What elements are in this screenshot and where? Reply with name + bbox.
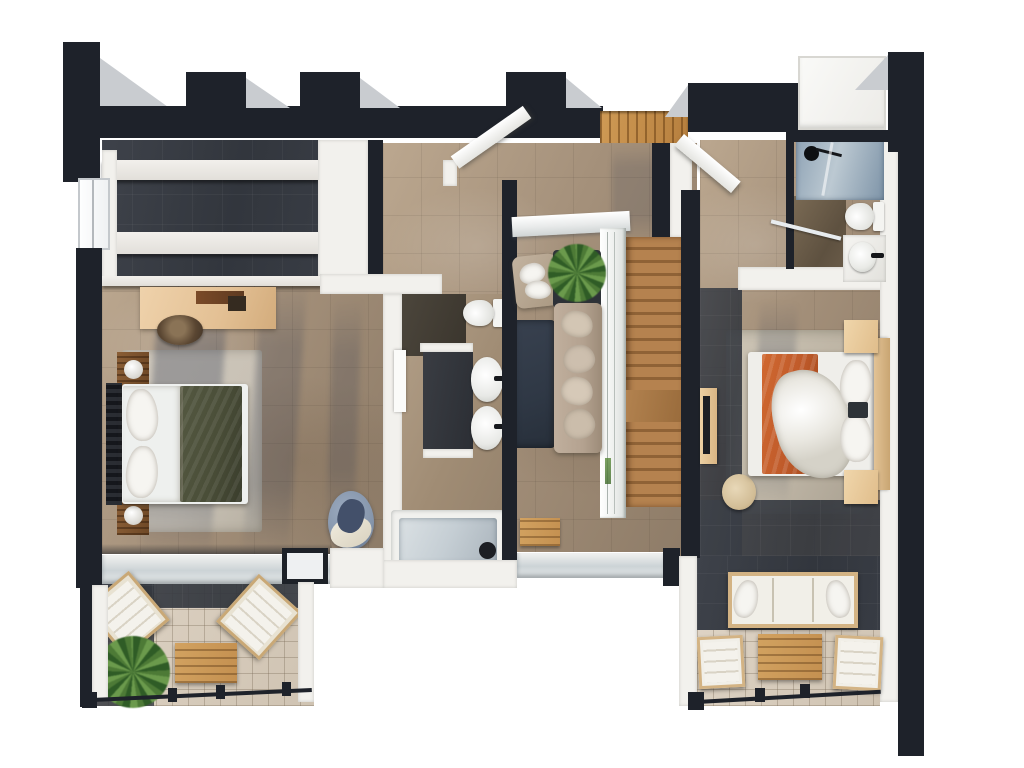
shower-enclosure bbox=[796, 138, 884, 200]
top-wall-thin-right bbox=[794, 130, 898, 142]
tv-screen bbox=[703, 396, 710, 454]
outdoor-sofa bbox=[728, 572, 858, 628]
shower-bath-divider bbox=[786, 132, 794, 269]
armchair-cushion bbox=[703, 641, 739, 683]
floor-plan-render bbox=[0, 0, 1024, 768]
second-bedroom-west-wall bbox=[681, 190, 700, 558]
bathroom-top-wall bbox=[320, 274, 442, 294]
railing-post bbox=[755, 688, 765, 702]
railing-post bbox=[800, 684, 810, 698]
hall-sofa bbox=[554, 303, 602, 453]
vanity-counter bbox=[423, 348, 473, 456]
second-bedroom-dark-bottom bbox=[700, 500, 884, 556]
sofa-end-pillow bbox=[730, 578, 761, 620]
window-left bbox=[78, 178, 110, 250]
top-wall-right-block bbox=[688, 83, 806, 132]
door-frame-stub bbox=[443, 160, 457, 186]
desk-accessory bbox=[228, 296, 246, 311]
railing-post bbox=[688, 692, 704, 710]
railing-glass-line bbox=[614, 232, 615, 514]
desk-chair bbox=[157, 315, 203, 345]
vanity-small bbox=[843, 235, 886, 282]
railing-post bbox=[82, 692, 97, 708]
wall-shadow-triangle bbox=[246, 78, 290, 108]
bathroom-pocket-door bbox=[394, 350, 406, 412]
west-outer-wall bbox=[76, 248, 102, 588]
sofa-pillow bbox=[561, 342, 597, 375]
staircase-treads bbox=[626, 237, 681, 507]
toilet-bowl bbox=[463, 300, 494, 326]
wall-shadow-triangle bbox=[360, 78, 400, 108]
outdoor-armchair bbox=[833, 635, 884, 691]
bathroom-east-wall bbox=[502, 180, 517, 585]
nightstand-light bbox=[844, 470, 878, 504]
wall-shadow-triangle bbox=[100, 58, 175, 112]
hall-potted-plant bbox=[548, 244, 606, 302]
railing-post bbox=[282, 682, 291, 696]
wall-tooth bbox=[506, 72, 566, 108]
armchair-cushion bbox=[839, 641, 877, 685]
nightstand-light bbox=[844, 320, 878, 353]
balcony-table bbox=[175, 643, 237, 683]
wall-tooth bbox=[186, 72, 246, 108]
toilet bbox=[463, 298, 504, 329]
toilet-small bbox=[845, 200, 884, 233]
curved-stool bbox=[722, 474, 756, 510]
toilet-tank bbox=[873, 202, 884, 231]
railing-plant-glimpse bbox=[605, 458, 611, 484]
bed-green-blanket bbox=[180, 386, 242, 502]
wall-segment bbox=[330, 548, 384, 588]
sofa-pillow bbox=[560, 406, 598, 443]
bathroom-bottom-wall bbox=[383, 560, 517, 588]
staircase-mid-landing bbox=[626, 390, 681, 422]
hall-glass-wall bbox=[517, 552, 665, 578]
balcony-left-west-edge bbox=[80, 585, 92, 707]
rooftop-closet bbox=[798, 56, 886, 130]
hall-armchair-pillow bbox=[525, 280, 552, 299]
toilet-bowl bbox=[845, 203, 874, 230]
wardrobe-end-wall bbox=[318, 140, 368, 276]
sofa-end-pillow bbox=[822, 578, 853, 620]
sofa-seat-line bbox=[772, 578, 774, 622]
window-mullion bbox=[92, 180, 94, 248]
balcony-left-west-cap bbox=[92, 585, 108, 700]
east-outer-wall bbox=[898, 52, 924, 756]
hall-wardrobe-wall bbox=[368, 140, 383, 276]
wall-shadow-triangle bbox=[665, 85, 688, 117]
table-lamp bbox=[124, 506, 143, 525]
wardrobe-base-edge bbox=[102, 276, 322, 286]
balcony-right-west-cap bbox=[679, 556, 697, 706]
bathtub-faucet bbox=[479, 542, 496, 559]
stairwell-upper-wall bbox=[652, 141, 670, 237]
wardrobe-shelf-lower bbox=[102, 232, 318, 254]
wall-tooth bbox=[300, 72, 360, 108]
railing-post bbox=[216, 685, 225, 699]
basin-faucet bbox=[871, 253, 884, 258]
bed2-folded-throw bbox=[848, 402, 868, 418]
table-lamp bbox=[124, 360, 143, 379]
balcony-left-east-cap bbox=[298, 582, 314, 702]
outdoor-armchair bbox=[697, 635, 746, 689]
sliding-door-frame bbox=[282, 548, 328, 584]
wall-shadow-triangle bbox=[566, 78, 602, 108]
sofa-pillow bbox=[558, 308, 595, 341]
blue-armchair bbox=[326, 487, 376, 553]
bed-headboard bbox=[106, 383, 122, 505]
wardrobe-shelf-upper bbox=[102, 160, 318, 180]
vanity-end-cap-top bbox=[420, 343, 473, 352]
coffee-table bbox=[758, 634, 822, 680]
sofa-pillow bbox=[558, 374, 595, 408]
vanity-end-cap-bottom bbox=[423, 449, 473, 458]
landing-wood-step bbox=[520, 518, 560, 546]
hallway-dark-rug bbox=[513, 320, 555, 448]
sofa-seat-line bbox=[812, 578, 814, 622]
bed2-headboard bbox=[874, 338, 890, 490]
railing-post bbox=[168, 688, 177, 702]
wall-post bbox=[663, 548, 680, 586]
